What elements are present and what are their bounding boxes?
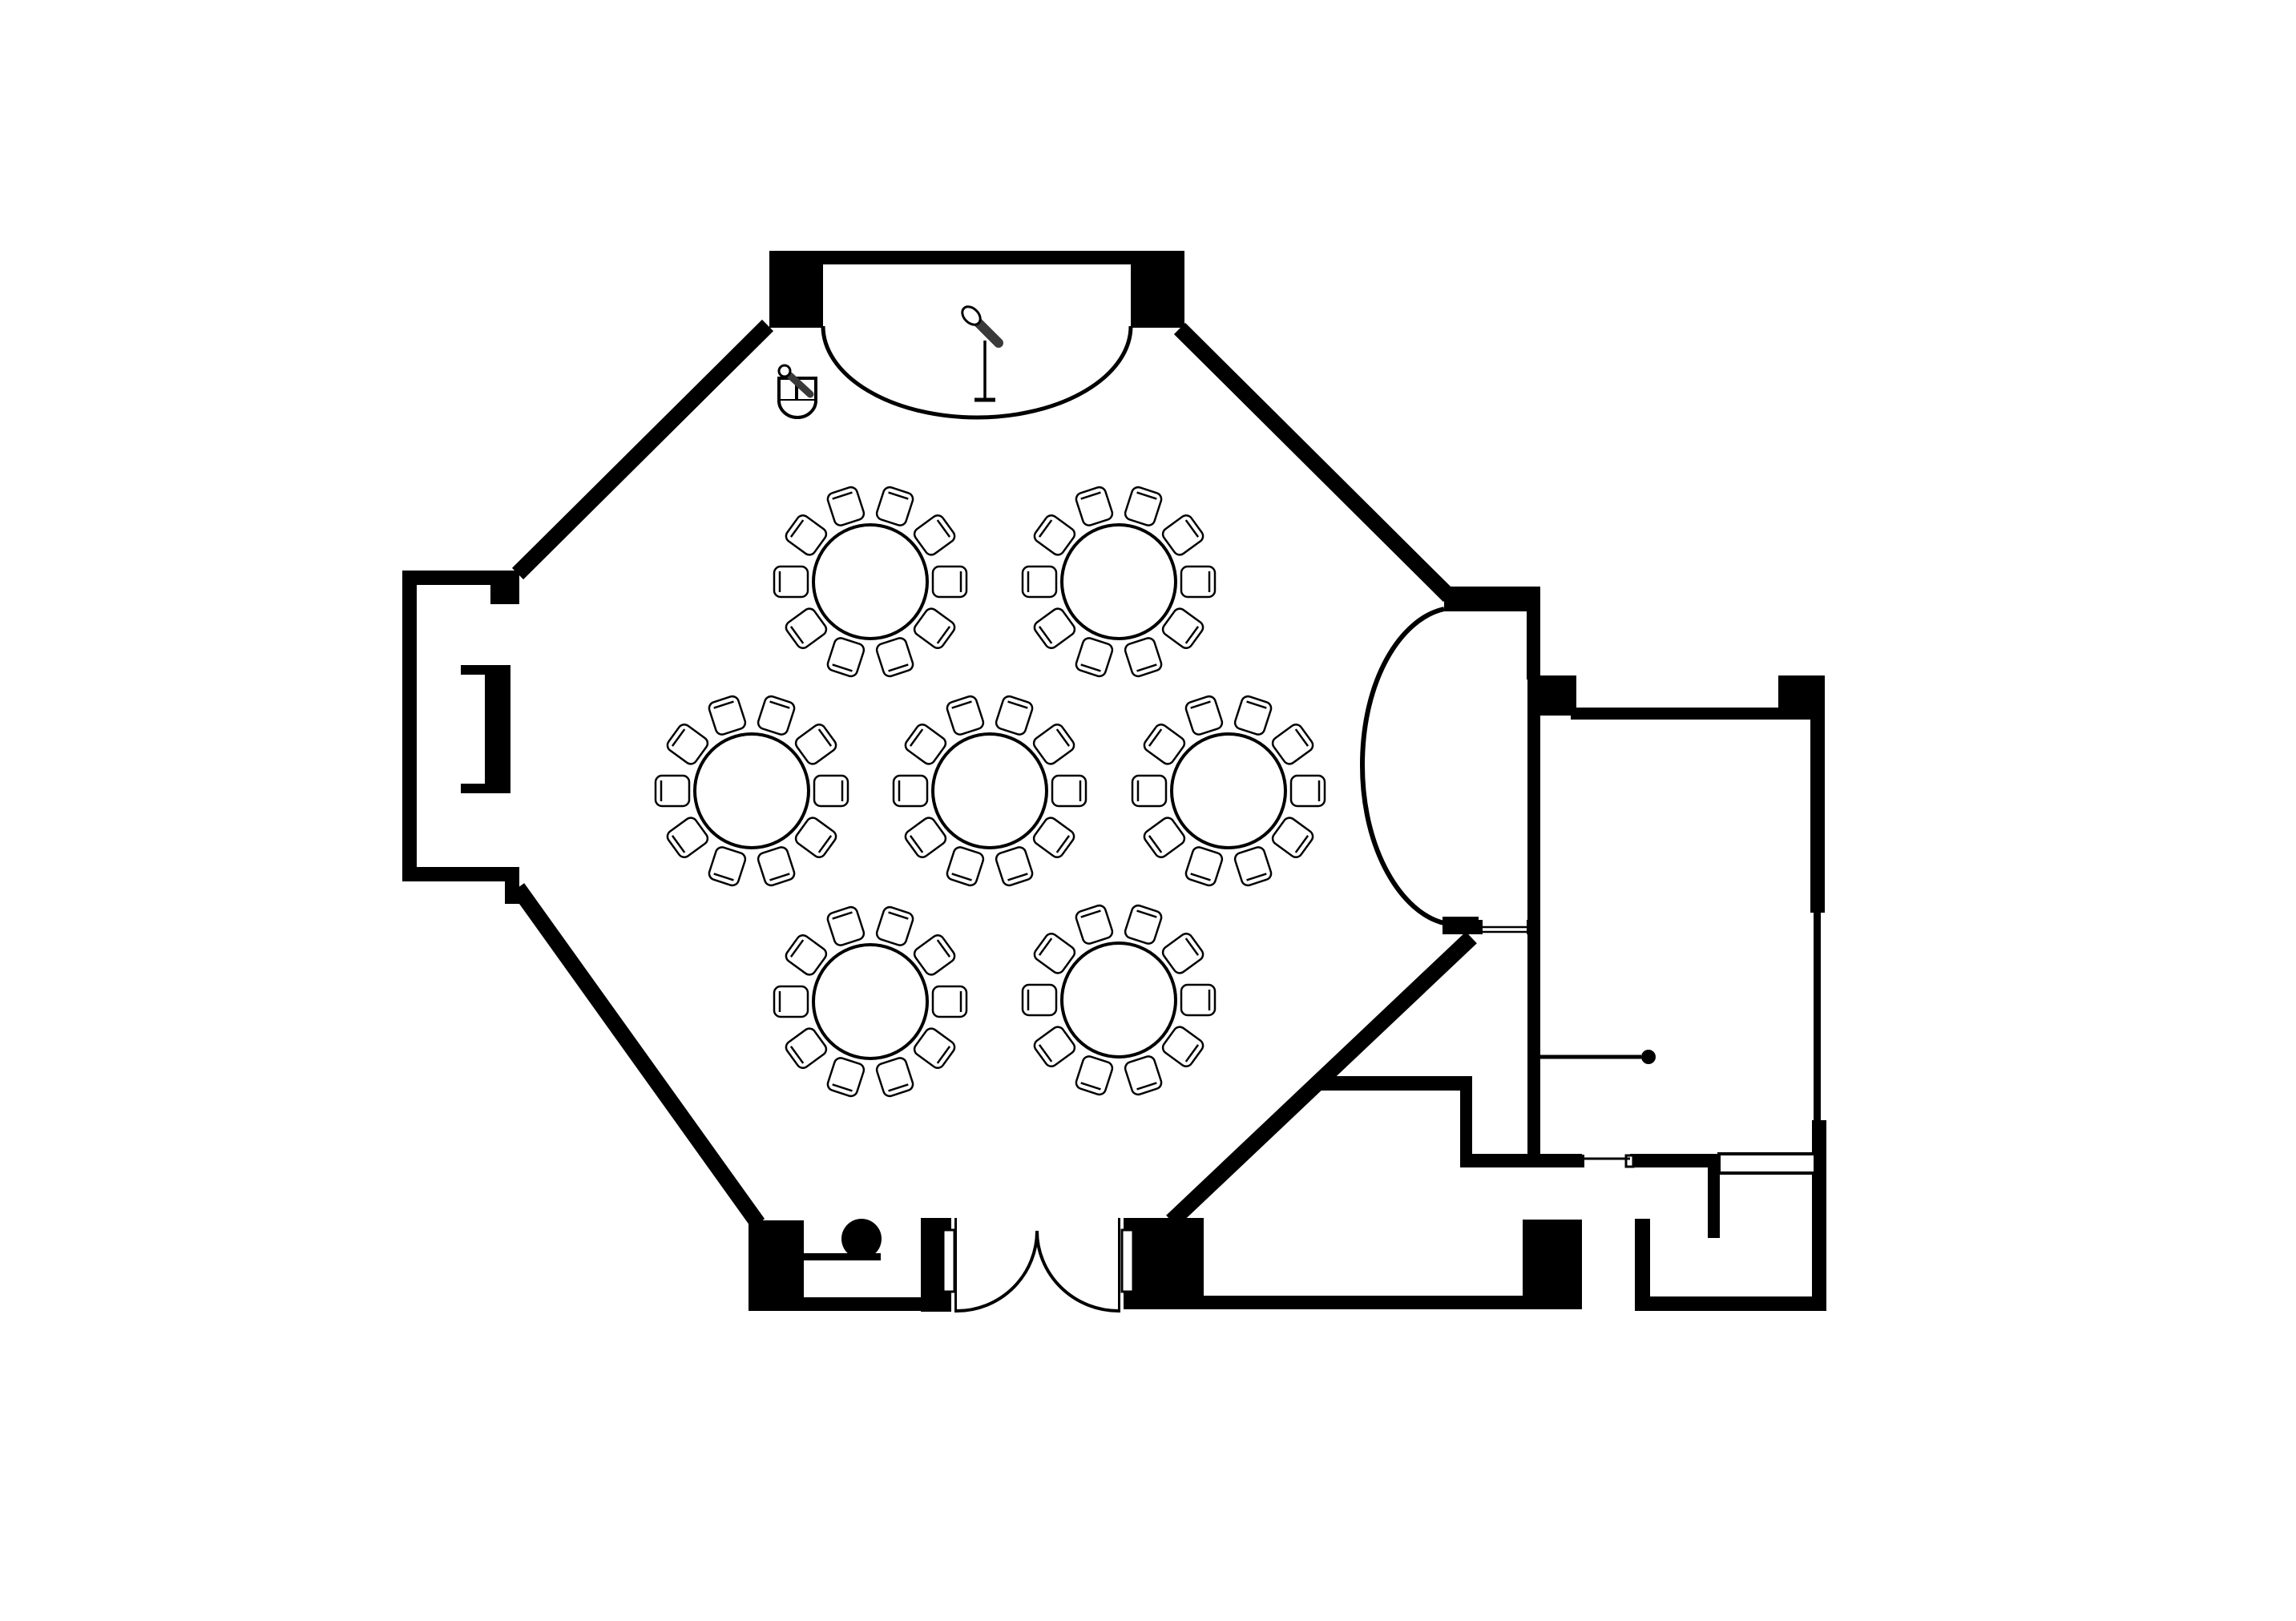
chair-icon	[894, 776, 927, 806]
wall-bracket-screen-bottom-flange	[461, 784, 510, 793]
table-circle	[695, 734, 809, 848]
east-bay-curved-wall	[1362, 609, 1444, 923]
chair-icon	[1052, 776, 1086, 806]
chair-icon	[875, 1056, 914, 1098]
wall-alcove-bottom	[402, 867, 519, 881]
lectern-base	[779, 401, 816, 417]
stage-front-arc	[823, 326, 1131, 417]
banquet-table-T7	[1023, 904, 1215, 1096]
chair-icon	[1181, 567, 1215, 597]
chair-icon	[1291, 776, 1325, 806]
chair-seat	[826, 905, 866, 947]
wall-south-band-left	[749, 1297, 922, 1311]
chair-seat	[875, 636, 914, 678]
door-knob-dot	[1641, 1050, 1656, 1064]
wall-south-band-right	[1204, 1296, 1523, 1309]
door-leaf-right	[1122, 1230, 1133, 1292]
chair-icon	[1124, 486, 1163, 527]
door-leaf-left	[943, 1230, 954, 1292]
wall-annex-west-upper	[1527, 611, 1540, 679]
chair-icon	[1184, 845, 1224, 887]
chair-icon	[1075, 636, 1114, 678]
chair-icon	[708, 845, 747, 887]
floor-plan-svg	[0, 0, 2296, 1621]
chair-icon	[826, 486, 866, 527]
chair-icon	[774, 567, 808, 597]
chair-icon	[1124, 1054, 1163, 1096]
wall-alcove-bottom-block	[505, 877, 519, 904]
wall-annex-south-left	[1460, 1154, 1582, 1167]
wall-stage-top-band	[769, 251, 1184, 264]
lectern-mic-head	[779, 365, 790, 377]
walls	[402, 251, 1826, 1312]
banquet-table-T1	[774, 486, 966, 678]
chair-seat	[875, 486, 914, 527]
chair-icon	[1233, 845, 1273, 887]
door-swing-arc-right	[1037, 1231, 1119, 1311]
wall-annex-east-upper	[1810, 720, 1825, 913]
chair-icon	[708, 695, 747, 736]
chair-icon	[774, 986, 808, 1017]
chair-icon	[1124, 636, 1163, 678]
wall-stage-block-left	[769, 251, 823, 328]
wall-annex-east-thin	[1814, 913, 1821, 1120]
banquet-table-T6	[774, 905, 966, 1098]
wall-south-pillar	[1523, 1220, 1582, 1309]
table-circle	[813, 525, 927, 639]
chair-seat	[1124, 1054, 1163, 1096]
chair-icon	[1124, 904, 1163, 946]
wall-entry-block-left	[749, 1220, 804, 1298]
bay-south-cased-opening	[1478, 920, 1532, 934]
table-circle	[1172, 734, 1285, 848]
table-circle	[813, 945, 927, 1058]
wall-diagonal-northwest	[518, 325, 768, 574]
chair-icon	[1181, 985, 1215, 1015]
door-jamb-line-right	[1118, 1218, 1120, 1313]
chair-icon	[1023, 567, 1056, 597]
wall-diagonal-southwest	[518, 888, 758, 1224]
wall-annex-corner-block-right	[1778, 675, 1825, 720]
annex-south-doorway	[1580, 1155, 1633, 1167]
door-swing-icon	[1540, 1050, 1656, 1064]
wall-bracket-screen-bar	[485, 668, 510, 793]
table-circle	[933, 734, 1047, 848]
chair-icon	[875, 486, 914, 527]
chair-seat	[1124, 904, 1163, 946]
chair-seat	[1233, 845, 1273, 887]
wall-annex-west	[1527, 679, 1540, 1154]
chair-seat	[826, 636, 866, 678]
chair-seat	[946, 845, 985, 887]
chair-icon	[656, 776, 689, 806]
chair-icon	[995, 695, 1034, 736]
mic-body	[977, 321, 999, 343]
wall-bay-top-band	[1444, 587, 1540, 611]
chair-seat	[1184, 695, 1224, 736]
chair-icon	[1132, 776, 1166, 806]
banquet-table-T2	[1023, 486, 1215, 678]
wall-midright-horizontal	[1318, 1076, 1472, 1091]
door-swing-arc-left	[957, 1231, 1037, 1311]
wall-alcove-west	[402, 571, 417, 881]
chair-icon	[826, 1056, 866, 1098]
wall-stage-block-right	[1131, 251, 1184, 328]
chair-seat	[875, 905, 914, 947]
wall-midright-vertical	[1460, 1076, 1472, 1167]
floor-plan-page	[0, 0, 2296, 1621]
opening-jamb	[1580, 1155, 1584, 1167]
chair-icon	[946, 845, 985, 887]
wall-southeast-vertical-stub	[1708, 1167, 1720, 1238]
chair-seat	[757, 845, 796, 887]
chair-seat	[995, 845, 1034, 887]
wall-annex-east-lower	[1812, 1120, 1826, 1311]
chair-icon	[875, 636, 914, 678]
chair-seat	[708, 695, 747, 736]
chair-seat	[1233, 695, 1273, 736]
opening-jamb	[1626, 1155, 1633, 1167]
chair-seat	[995, 695, 1034, 736]
wall-alcove-top-block	[490, 571, 519, 604]
chair-icon	[1233, 695, 1273, 736]
chair-icon	[995, 845, 1034, 887]
wall-annex-north	[1571, 708, 1781, 720]
chair-seat	[1075, 636, 1114, 678]
table-circle	[1062, 525, 1176, 639]
wall-seroom-south	[1635, 1296, 1826, 1311]
chair-seat	[1184, 845, 1224, 887]
chair-icon	[814, 776, 848, 806]
chair-seat	[826, 1056, 866, 1098]
chair-icon	[757, 695, 796, 736]
chair-seat	[1075, 486, 1114, 527]
wall-annex-south-right	[1630, 1154, 1718, 1167]
banquet-table-T3	[656, 695, 848, 887]
chair-seat	[946, 695, 985, 736]
entry-column-fixture	[804, 1219, 882, 1260]
chair-icon	[757, 845, 796, 887]
chair-seat	[757, 695, 796, 736]
chair-icon	[875, 905, 914, 947]
wall-diagonal-northeast	[1180, 329, 1449, 596]
chair-seat	[875, 1056, 914, 1098]
chair-icon	[826, 905, 866, 947]
chair-icon	[1023, 985, 1056, 1015]
wall-entry-block-right	[1124, 1218, 1204, 1309]
banquet-table-T4	[894, 695, 1086, 887]
chair-icon	[1075, 486, 1114, 527]
table-circle	[1062, 943, 1176, 1057]
chair-icon	[933, 567, 966, 597]
chair-icon	[1075, 904, 1114, 946]
southeast-cased-opening	[1719, 1154, 1815, 1173]
microphone-icon	[958, 303, 999, 400]
doors	[804, 920, 1815, 1313]
chair-icon	[946, 695, 985, 736]
opening-jamb	[1527, 920, 1532, 934]
chair-icon	[1184, 695, 1224, 736]
chair-seat	[708, 845, 747, 887]
banquet-table-T5	[1132, 695, 1325, 887]
chair-seat	[1124, 636, 1163, 678]
chair-seat	[1075, 904, 1114, 946]
chair-seat	[1075, 1054, 1114, 1096]
tables-layer	[656, 486, 1325, 1098]
chair-seat	[1124, 486, 1163, 527]
chair-icon	[1075, 1054, 1114, 1096]
double-entry-door	[943, 1218, 1133, 1313]
chair-seat	[826, 486, 866, 527]
column-disc	[841, 1219, 882, 1259]
chair-icon	[826, 636, 866, 678]
chair-icon	[933, 986, 966, 1017]
lectern-icon	[779, 365, 816, 417]
wall-bay-bottom-block	[1443, 917, 1479, 934]
